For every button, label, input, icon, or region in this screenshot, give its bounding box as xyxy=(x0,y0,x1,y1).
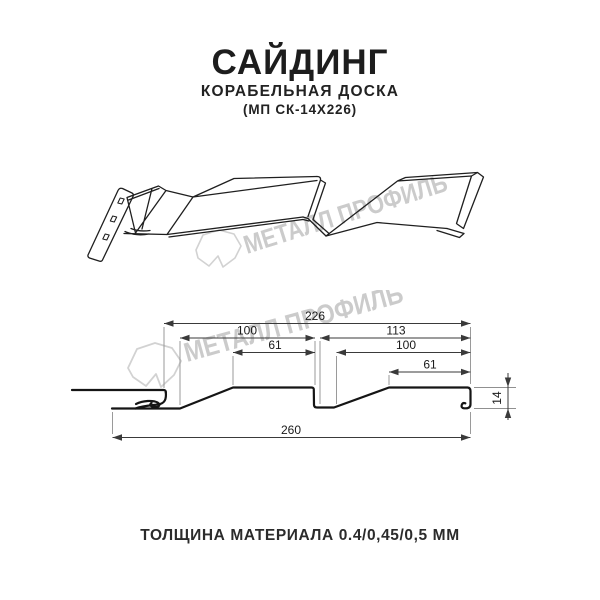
nail-hole xyxy=(118,198,124,204)
metal-profil-logo-icon xyxy=(196,230,241,267)
product-title: САЙДИНГ xyxy=(0,46,600,80)
extension-lines xyxy=(113,327,517,434)
product-model-code: (МП СК-14Х226) xyxy=(0,103,600,117)
dim-label-right-slope: 100 xyxy=(396,338,416,352)
metal-profil-logo-icon xyxy=(128,343,181,387)
watermark-text: МЕТАЛЛ ПРОФИЛЬ xyxy=(240,167,451,259)
product-spec-page: САЙДИНГ КОРАБЕЛЬНАЯ ДОСКА (МП СК-14Х226)… xyxy=(0,0,600,600)
dim-label-total-width: 260 xyxy=(281,423,301,437)
lock-fold xyxy=(127,186,193,233)
dim-label-left-board: 100 xyxy=(237,324,257,338)
nail-hole xyxy=(110,216,116,222)
dim-label-right-board: 113 xyxy=(386,324,405,338)
profile-cross-section-drawing: МЕТАЛЛ ПРОФИЛЬ 226 100 113 61 100 61 260… xyxy=(50,290,555,455)
product-subtitle: КОРАБЕЛЬНАЯ ДОСКА xyxy=(0,84,600,99)
material-thickness-note: ТОЛЩИНА МАТЕРИАЛА 0.4/0,45/0,5 ММ xyxy=(0,527,600,545)
nail-strip xyxy=(88,188,133,261)
lock-foot xyxy=(124,229,167,235)
watermark-text: МЕТАЛЛ ПРОФИЛЬ xyxy=(181,290,407,368)
dim-label-overall-width: 226 xyxy=(305,309,325,323)
dim-label-height: 14 xyxy=(490,391,504,405)
nail-hole xyxy=(103,234,109,240)
dim-label-left-flat: 61 xyxy=(268,338,282,352)
section-hem-line xyxy=(72,390,166,393)
dim-label-right-flat: 61 xyxy=(423,358,437,372)
profile-3d-drawing: МЕТАЛЛ ПРОФИЛЬ xyxy=(80,148,500,282)
